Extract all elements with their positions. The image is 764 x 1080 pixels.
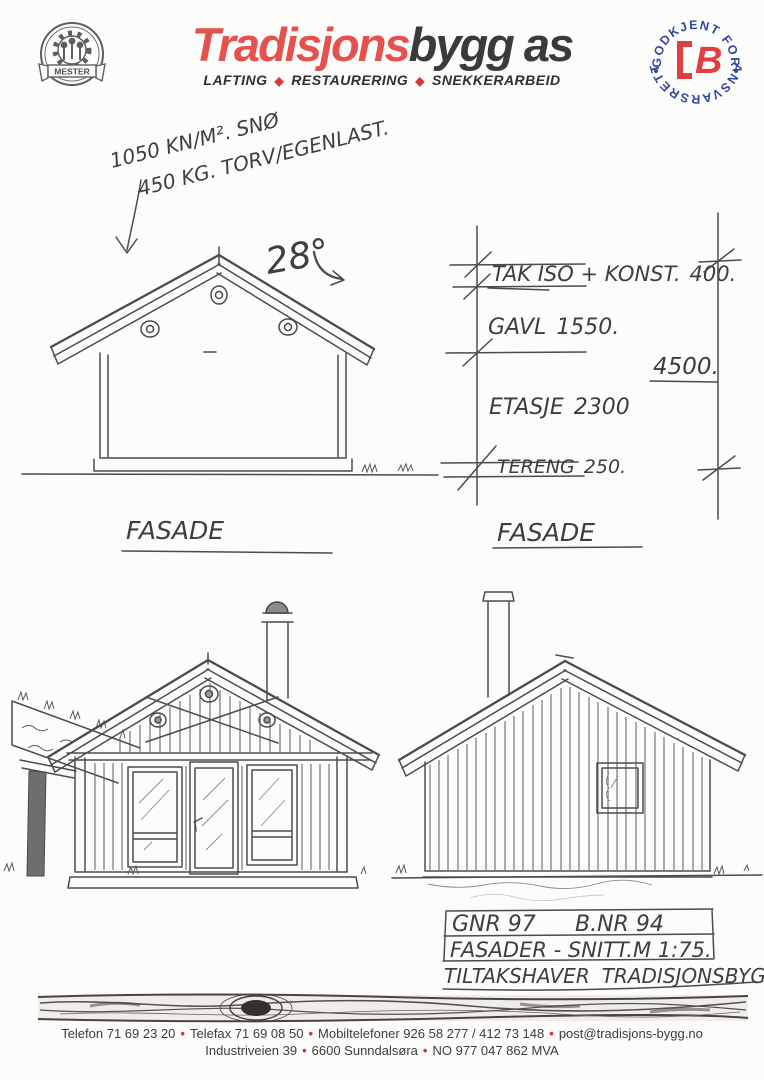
grass-icon [396, 865, 749, 874]
footer-line-1: Telefon 71 69 23 20•Telefax 71 69 08 50•… [0, 1026, 764, 1043]
footer-contact: Telefon 71 69 23 20•Telefax 71 69 08 50•… [0, 1026, 764, 1060]
sod-roof-shed [12, 692, 140, 876]
ground-line [22, 474, 438, 475]
footer-mobile: Mobiltelefoner 926 58 277 / 412 73 148 [318, 1026, 544, 1041]
wall-outline [75, 756, 347, 872]
dim-total-underline [650, 381, 717, 382]
down-arrow-shaft [127, 180, 141, 250]
chimney-front [262, 602, 293, 700]
dim-total: 4500. [653, 354, 719, 380]
dimension-lines-left: TAK ISO + KONST.400. GAVL1550. ETASJE230… [441, 226, 736, 548]
title-block-row-owner: TILTAKSHAVERTRADISJONSBYGG [444, 964, 764, 988]
dim-tak: TAK ISO + KONST.400. [492, 262, 736, 286]
dim-etasje: ETASJE2300 [489, 395, 630, 420]
walls-and-foundation [94, 352, 352, 471]
chimney-side [483, 592, 514, 697]
title-block: GNR 97B.NR 94 FASADER - SNITT.M 1:75. TI… [443, 894, 764, 990]
dim-gavl: GAVL1550. [488, 315, 619, 340]
facade-top-sketch: FASADE [22, 247, 438, 553]
roof-outline [48, 660, 379, 757]
fasade-left-underline [122, 551, 332, 553]
window-left [128, 767, 182, 867]
foundation-sill [68, 877, 358, 888]
grass-icon [362, 464, 413, 472]
bullet-icon: • [303, 1026, 318, 1041]
entry-door [190, 762, 238, 874]
dimension-lines-right: 4500. [650, 213, 741, 519]
facade-front-sketch [4, 602, 379, 888]
fasade-right-underline [493, 547, 642, 548]
footer-phone: Telefon 71 69 23 20 [61, 1026, 175, 1041]
footer-line-2: Industriveien 39•6600 Sunndalsøra•NO 977… [0, 1043, 764, 1060]
scanned-drawing-page: MESTER Tradisjonsbygg as LAFTING◆RESTAUR… [0, 0, 764, 1080]
chimney-cap [266, 602, 288, 613]
roof-outline [399, 661, 745, 760]
turf-grass-icon [18, 692, 125, 738]
ground-scribble [428, 880, 652, 888]
footer-street: Industriveien 39 [205, 1043, 297, 1058]
bullet-icon: • [418, 1043, 433, 1058]
wood-grain-strip [38, 994, 748, 1022]
snow-load-note: 1050 KN/M². SNØ 450 KG. TORV/EGENLAST. [107, 107, 391, 253]
gable-siding [430, 687, 702, 870]
purlin-ends [141, 286, 297, 337]
shed-post [27, 771, 46, 876]
dim-tereng: TERENG250. [497, 456, 626, 478]
footer-city: 6600 Sunndalsøra [312, 1043, 418, 1058]
footer-email: post@tradisjons-bygg.no [559, 1026, 703, 1041]
sketch-canvas: 1050 KN/M². SNØ 450 KG. TORV/EGENLAST. 2… [0, 0, 764, 1080]
roof-boards [48, 653, 379, 772]
facade-side-sketch [392, 592, 762, 889]
footer-fax: Telefax 71 69 08 50 [190, 1026, 303, 1041]
bullet-icon: • [175, 1026, 190, 1041]
wall-outline [423, 760, 712, 877]
wood-knot [241, 1000, 271, 1016]
roof-angle-value: 28° [262, 231, 332, 282]
title-block-row-gnr: GNR 97B.NR 94 [452, 912, 664, 937]
bullet-icon: • [297, 1043, 312, 1058]
window-right [247, 765, 297, 865]
title-block-row-drawing: FASADER - SNITT.M 1:75. [450, 938, 712, 962]
dim-tak-underline [488, 288, 549, 290]
footer-orgnr: NO 977 047 862 MVA [432, 1043, 558, 1058]
fasade-label-left: FASADE [126, 516, 224, 545]
faint-scribble [470, 894, 604, 900]
fasade-label-right: FASADE [497, 518, 595, 547]
roof-angle-note: 28° [262, 231, 344, 285]
bullet-icon: • [544, 1026, 559, 1041]
down-arrow-icon [116, 237, 137, 253]
